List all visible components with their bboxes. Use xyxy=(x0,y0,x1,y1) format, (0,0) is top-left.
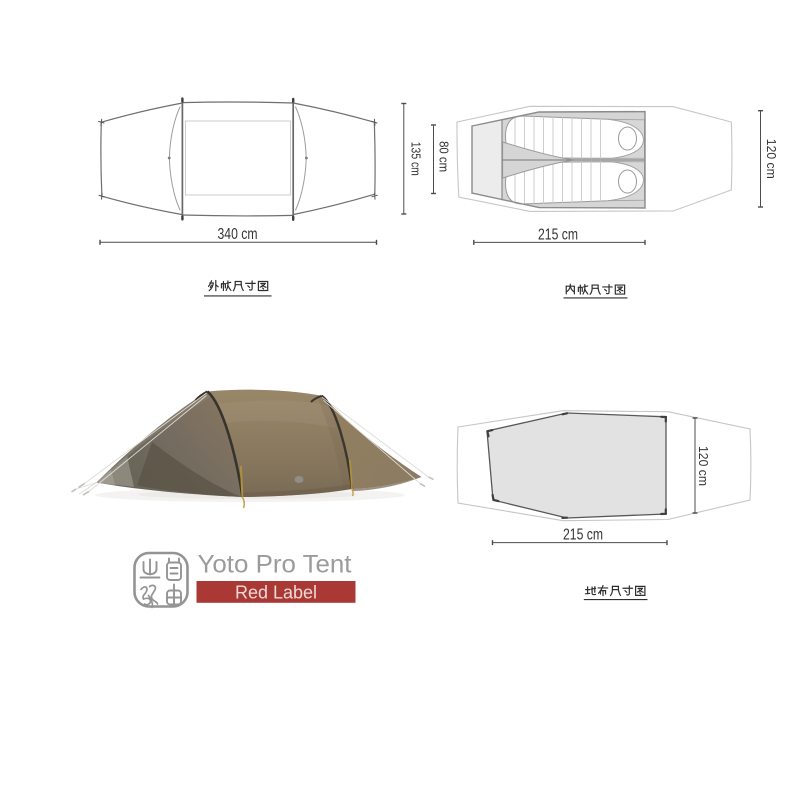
svg-text:Yoto Pro Tent: Yoto Pro Tent xyxy=(198,551,352,579)
svg-text:120 cm: 120 cm xyxy=(696,446,711,486)
svg-text:Red Label: Red Label xyxy=(235,583,317,603)
svg-text:215 cm: 215 cm xyxy=(538,226,578,243)
svg-text:120 cm: 120 cm xyxy=(764,139,779,179)
svg-text:215 cm: 215 cm xyxy=(563,527,603,544)
svg-text:340 cm: 340 cm xyxy=(218,226,258,243)
svg-text:80 cm: 80 cm xyxy=(437,141,451,172)
svg-text:135 cm: 135 cm xyxy=(408,142,422,176)
